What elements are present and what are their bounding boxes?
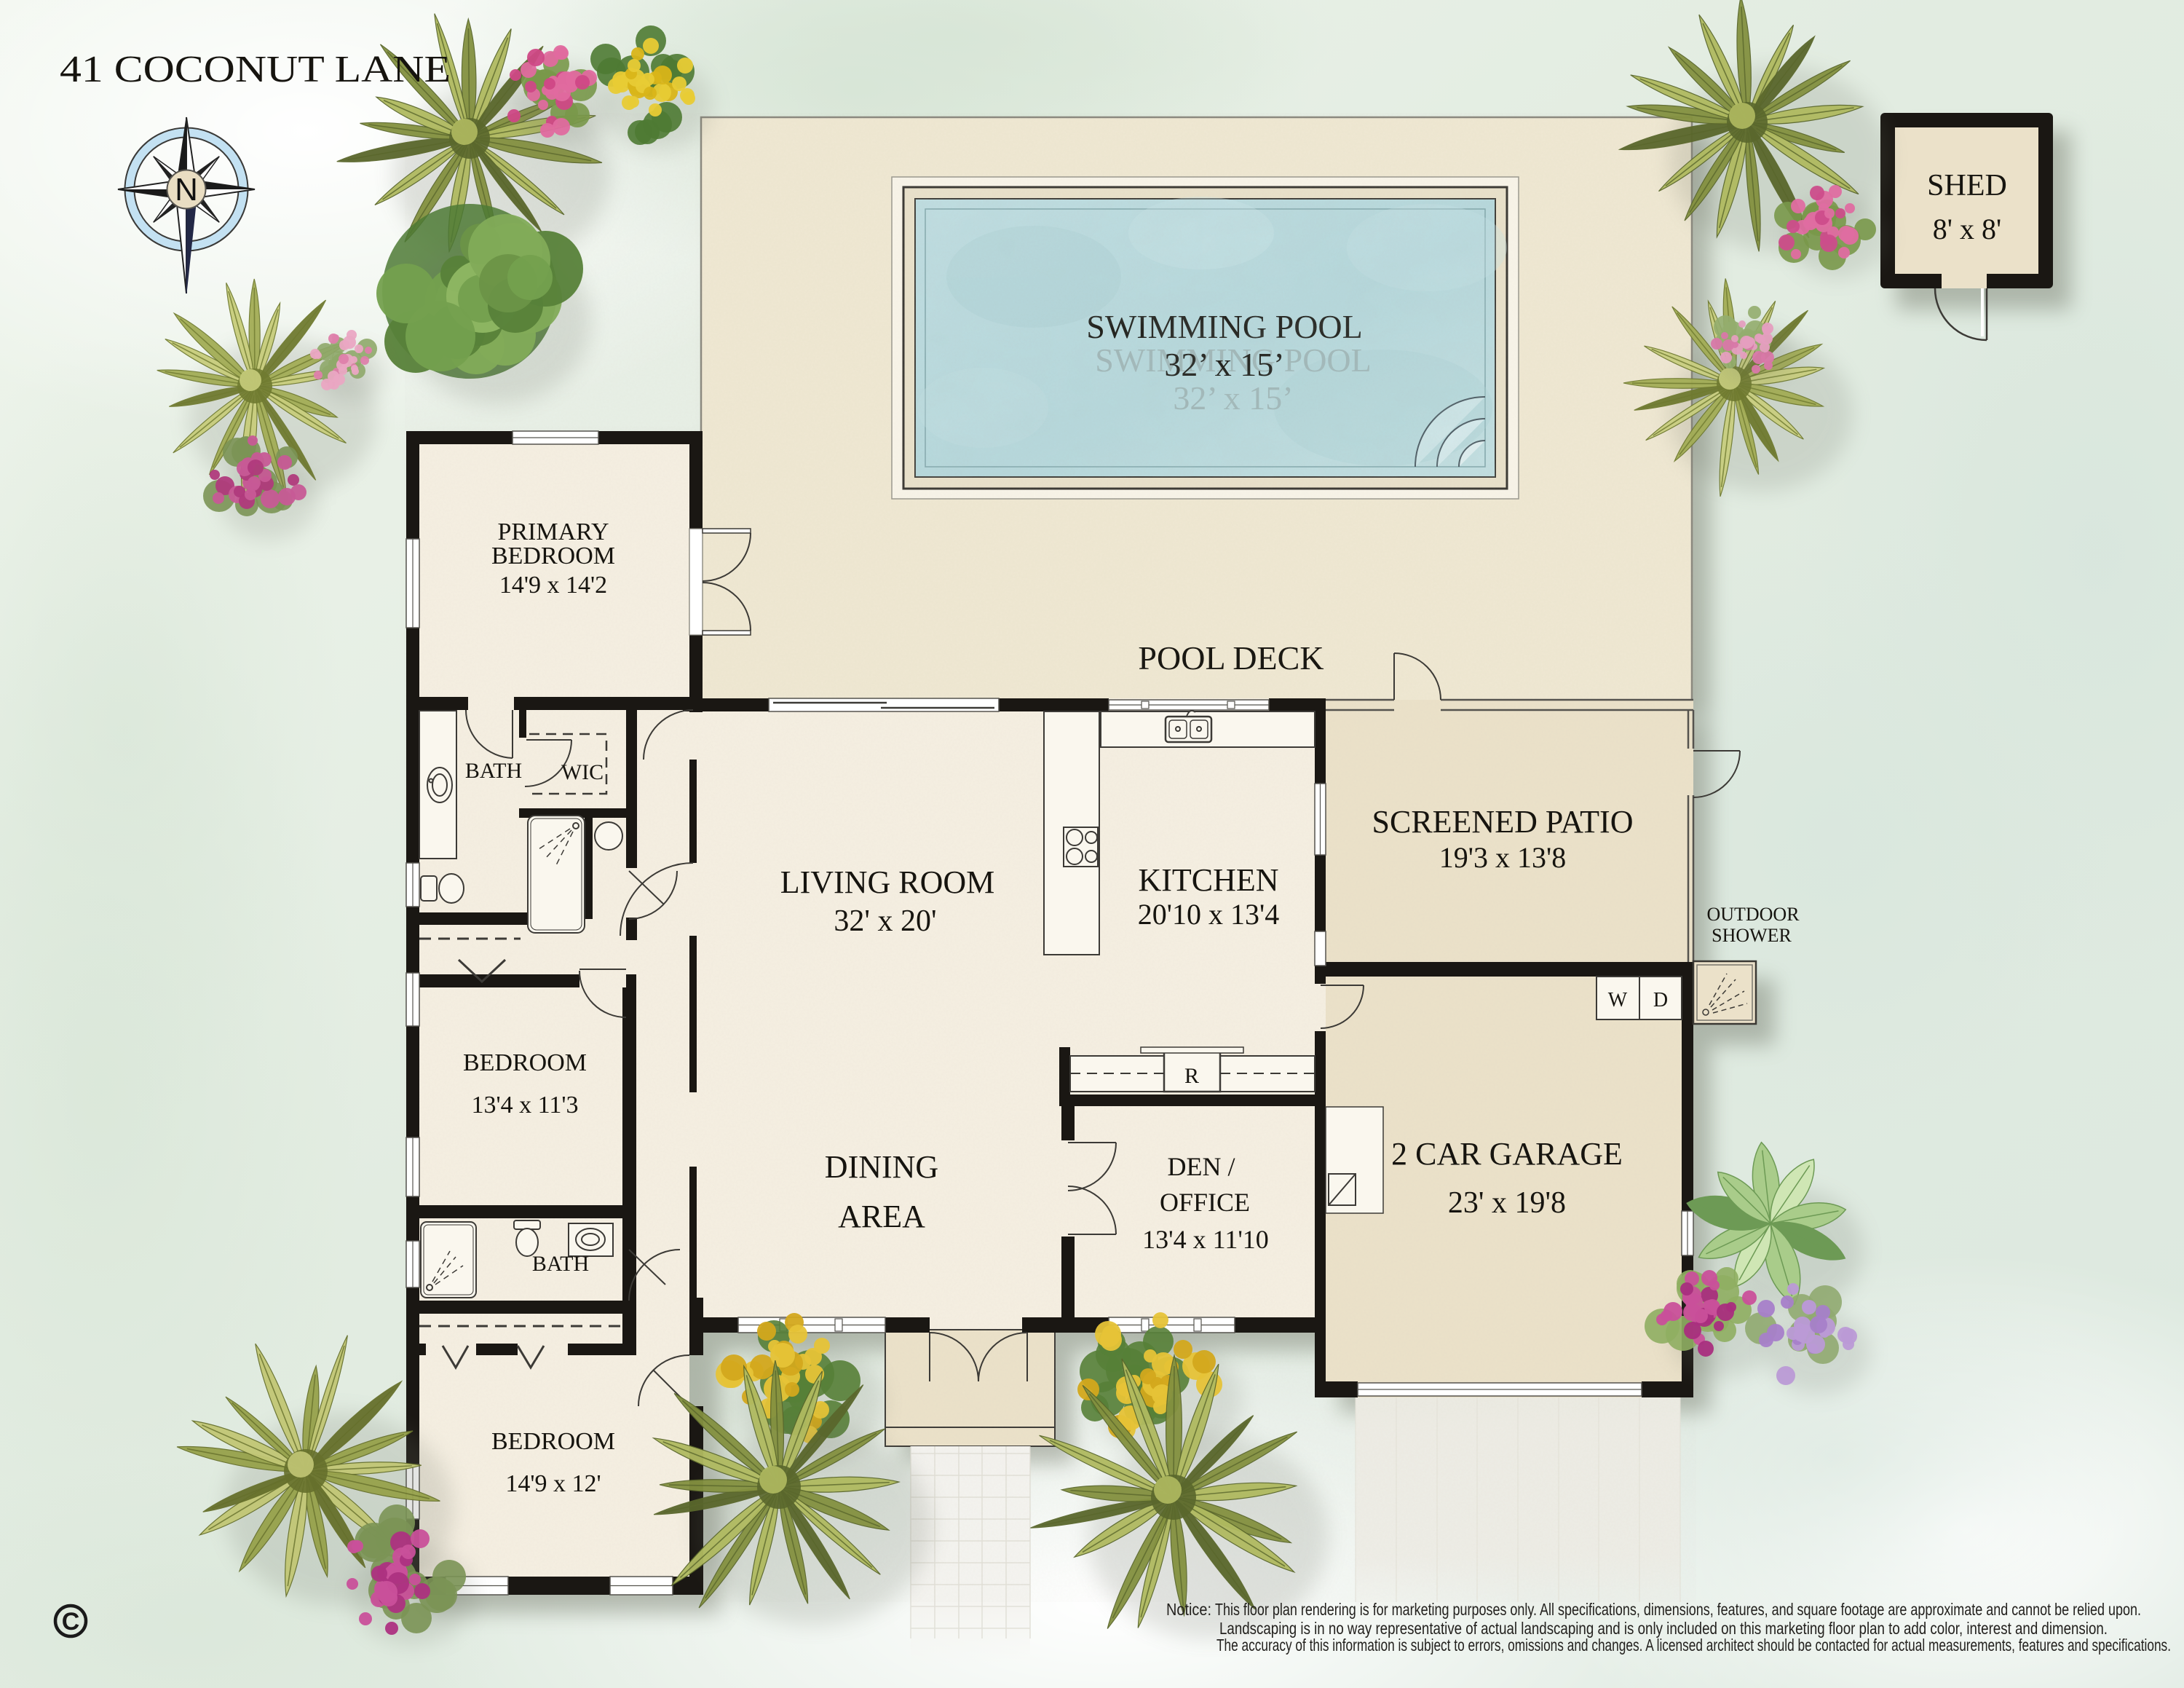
svg-text:BATH: BATH [532,1252,589,1276]
svg-text:SHED: SHED [1927,169,2007,202]
svg-text:SCREENED PATIO: SCREENED PATIO [1372,804,1634,840]
svg-text:13'4 x 11'3: 13'4 x 11'3 [472,1092,579,1119]
svg-text:R: R [1184,1064,1199,1088]
svg-text:41 COCONUT LANE: 41 COCONUT LANE [60,49,451,90]
svg-text:BEDROOM: BEDROOM [463,1049,587,1076]
svg-text:14'9 x 14'2: 14'9 x 14'2 [499,572,607,599]
svg-text:32' x 20': 32' x 20' [834,904,936,938]
svg-text:LIVING ROOM: LIVING ROOM [780,864,995,900]
svg-text:SHOWER: SHOWER [1712,925,1792,946]
svg-text:19'3 x 13'8: 19'3 x 13'8 [1439,841,1566,874]
svg-text:This floor plan rendering is f: This floor plan rendering is for marketi… [1215,1600,2141,1619]
svg-text:BEDROOM: BEDROOM [491,1428,615,1455]
svg-text:OUTDOOR: OUTDOOR [1706,904,1800,925]
svg-text:8' x 8': 8' x 8' [1933,213,2001,245]
svg-text:D: D [1653,989,1668,1011]
svg-text:14'9 x 12': 14'9 x 12' [505,1470,601,1497]
svg-text:C: C [62,1608,80,1636]
svg-text:DEN /: DEN / [1168,1152,1235,1181]
svg-text:23' x 19'8: 23' x 19'8 [1448,1186,1566,1220]
svg-text:DINING: DINING [825,1149,938,1185]
svg-text:N: N [175,172,198,208]
svg-text:W: W [1608,989,1628,1011]
svg-text:20'10 x 13'4: 20'10 x 13'4 [1138,898,1279,931]
svg-text:13'4 x 11'10: 13'4 x 11'10 [1142,1225,1269,1254]
svg-text:The accuracy of this informati: The accuracy of this information is subj… [1216,1636,2171,1655]
svg-text:PRIMARY: PRIMARY [497,518,609,545]
svg-text:BEDROOM: BEDROOM [491,543,615,569]
svg-text:OFFICE: OFFICE [1160,1188,1250,1217]
svg-text:2 CAR GARAGE: 2 CAR GARAGE [1391,1136,1623,1172]
svg-text:KITCHEN: KITCHEN [1138,862,1278,898]
svg-text:WIC: WIC [561,760,604,784]
svg-text:Notice:: Notice: [1166,1600,1211,1619]
svg-text:AREA: AREA [838,1199,925,1234]
svg-text:BATH: BATH [465,759,522,783]
